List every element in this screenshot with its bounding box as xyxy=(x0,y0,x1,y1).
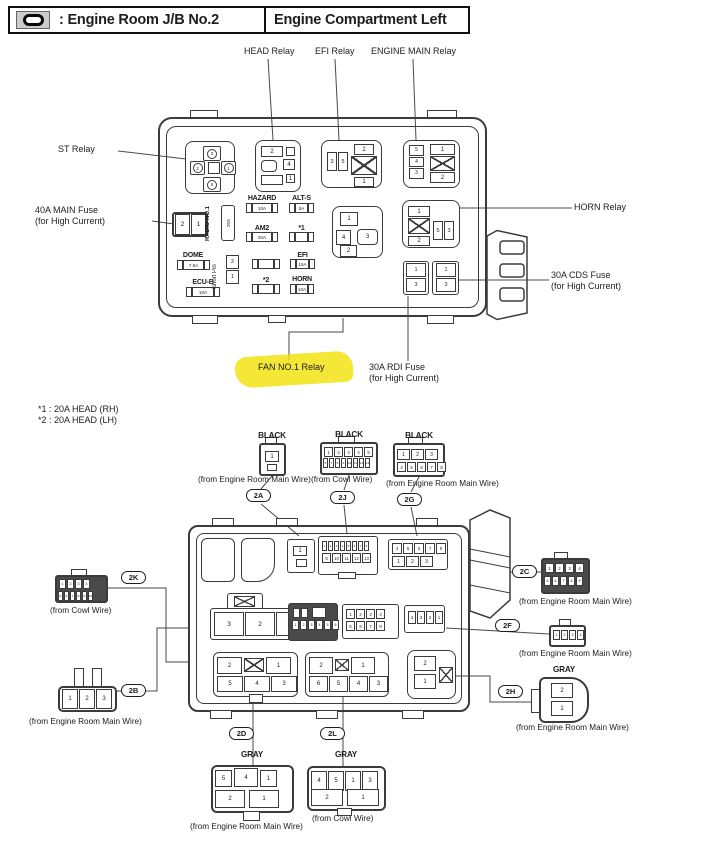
head-relay-pin xyxy=(261,175,283,185)
from-label-2h: (from Engine Room Main Wire) xyxy=(516,723,629,733)
pin-cell: 5 xyxy=(328,771,344,791)
pin-cell: 1 xyxy=(436,263,456,277)
head-relay-pin: 1 xyxy=(286,174,295,183)
head-relay-pin xyxy=(261,160,277,172)
header-legend-text: : Engine Room J/B No.2 xyxy=(59,12,219,28)
connector-latch-prong xyxy=(74,668,84,687)
socket-2c-pins-row2: 5678 xyxy=(346,621,385,631)
connector-id-oval-2l: 2L xyxy=(320,727,345,740)
fuse-am2: 30A xyxy=(246,232,278,242)
connector-color-label: BLACK xyxy=(244,431,300,440)
pin-cell: 1 xyxy=(226,270,239,284)
socket-2d-pins-row2: 543 xyxy=(217,676,297,692)
pin-cell: 11 xyxy=(342,553,351,563)
pin-cell: 7 xyxy=(560,576,567,586)
pin-cell: 2 xyxy=(175,214,190,235)
connector-2d-pin: 5 xyxy=(215,770,232,787)
pin-cell: 1 xyxy=(345,771,361,791)
jb-symbol-icon xyxy=(16,11,50,29)
connector-2k-pins-row1: 1234 xyxy=(59,579,90,589)
connector-2d-latch xyxy=(243,811,260,821)
connector-color-label: GRAY xyxy=(328,750,364,759)
pin-cell: 3 xyxy=(565,563,574,573)
pin-cell: 5 xyxy=(346,621,355,631)
pin-cell: 1 xyxy=(324,447,333,457)
pin-cell: 2 xyxy=(334,447,343,457)
callout-main-fuse: 40A MAIN Fuse (for High Current) xyxy=(35,205,105,226)
socket-2l-pin: 1 xyxy=(351,657,375,674)
from-label-2l: (from Cowl Wire) xyxy=(312,814,373,824)
pin-cell: 3 xyxy=(417,611,425,624)
pin-cell: 1 xyxy=(191,214,206,235)
st-relay-lobe-right: 1 xyxy=(221,161,236,175)
pin-cell: 2 xyxy=(328,541,333,551)
pin-cell: 1 xyxy=(545,563,554,573)
connector-2f-pins: 1234 xyxy=(553,630,584,640)
pin-cell: 11 xyxy=(353,458,358,468)
fuse-label-hazard: HAZARD xyxy=(243,195,281,202)
pin-cell: 6 xyxy=(352,541,357,551)
socket-2j-pins-row2: 910111213 xyxy=(322,553,371,563)
fuse-label-am2: AM2 xyxy=(246,225,278,232)
connector-2d-pin: 1 xyxy=(260,770,277,787)
connector-2g-pins-row1: 123 xyxy=(397,449,438,460)
leader-line xyxy=(117,628,188,691)
horn-relay-pin: 1 xyxy=(408,206,430,217)
fuse-rating: 30A xyxy=(252,232,272,242)
pin-cell: 7 xyxy=(366,621,375,631)
connector-id-oval-2k: 2K xyxy=(121,571,146,584)
box-tab xyxy=(212,518,234,526)
connector-2h-pins: 21 xyxy=(551,683,573,716)
leader-line xyxy=(108,588,188,662)
fuse-label-ecu-b: ECU-B xyxy=(183,279,223,286)
callout-cds-fuse: 30A CDS Fuse (for High Current) xyxy=(551,270,621,291)
st-pin: 5 xyxy=(207,180,217,190)
pin-cell: 3 xyxy=(425,449,438,460)
pin-cell: 7 xyxy=(70,591,75,601)
pin-cell: 2 xyxy=(67,579,74,589)
pin-cell: 7 xyxy=(425,543,435,554)
pin-cell: 3 xyxy=(362,771,378,791)
pin-cell: 2 xyxy=(426,611,434,624)
pin-cell: 13 xyxy=(362,553,371,563)
oval-icon xyxy=(23,14,44,26)
pin-cell: 8 xyxy=(437,462,446,472)
pin-cell: 2 xyxy=(356,609,365,619)
callout-head-relay: HEAD Relay xyxy=(244,46,295,57)
from-label-2f: (from Engine Room Main Wire) xyxy=(519,649,632,659)
socket-2a-slot xyxy=(296,559,307,567)
header-legend-cell: : Engine Room J/B No.2 xyxy=(10,8,266,32)
footnotes: *1 : 20A HEAD (RH) *2 : 20A HEAD (LH) xyxy=(38,404,119,425)
horn-relay-pin: 2 xyxy=(408,236,430,246)
from-label-2c: (from Engine Room Main Wire) xyxy=(519,597,632,607)
connector-id-oval-2f: 2F xyxy=(495,619,520,632)
pin-cell: 4 xyxy=(340,541,345,551)
efi-relay-pin: 1 xyxy=(354,177,374,187)
pin-cell: 5 xyxy=(329,676,348,692)
box-tab xyxy=(276,518,298,526)
socket-2h-pins: 21 xyxy=(414,656,436,689)
connector-id-oval-2c: 2C xyxy=(512,565,537,578)
pin-cell: 1 xyxy=(397,449,410,460)
connector-color-label: BLACK xyxy=(321,430,377,439)
pin-cell: 6 xyxy=(309,676,328,692)
footnote-2: *2 : 20A HEAD (LH) xyxy=(38,415,119,426)
socket-2d-pin: 2 xyxy=(217,657,242,674)
pin-cell: 3 xyxy=(366,609,375,619)
from-label-2d: (from Engine Room Main Wire) xyxy=(190,822,303,832)
connector-color-label: GRAY xyxy=(546,665,582,674)
st-relay-lobe-top: 3 xyxy=(203,146,221,161)
blank-cavity xyxy=(241,538,275,582)
fuse-rating xyxy=(295,232,308,242)
fan-relay-pin: 4 xyxy=(336,230,351,245)
fan-relay-pin: 1 xyxy=(340,212,358,226)
pin-cell: 1 xyxy=(346,609,355,619)
connector-2d-pin: 1 xyxy=(249,790,279,808)
pin-cell: 5 xyxy=(346,541,351,551)
fuse-rating: 5A xyxy=(295,203,308,213)
callout-cds-line2: (for High Current) xyxy=(551,281,621,292)
pin-cell: 7 xyxy=(427,462,436,472)
callout-cds-line1: 30A CDS Fuse xyxy=(551,270,621,281)
pin-cell: 3 xyxy=(327,152,337,171)
pin-cell: 3 xyxy=(308,620,315,630)
cds-fuse-cells: 13 xyxy=(436,263,456,292)
connector-id-oval-2j: 2J xyxy=(330,491,355,504)
engine-main-pin-column: 543 xyxy=(409,145,424,179)
pin-cell: 5 xyxy=(407,462,416,472)
pin-cell: 6 xyxy=(332,620,339,630)
connector-2l-pins-row1: 4513 xyxy=(311,771,378,791)
pin-cell: 2 xyxy=(300,620,307,630)
pin-cell: 10 xyxy=(88,591,93,601)
head-relay-pin: 2 xyxy=(261,146,283,157)
horn-relay-coil-x xyxy=(408,218,430,234)
connector-id-oval-2g: 2G xyxy=(397,493,422,506)
pin-cell: 7 xyxy=(358,541,363,551)
pin-cell: 13 xyxy=(365,458,370,468)
pin-cell: 4 xyxy=(409,157,424,168)
from-label-2k: (from Cowl Wire) xyxy=(50,606,111,616)
connector-2b-pins: 123 xyxy=(62,689,112,709)
fuse-rating: 10A xyxy=(192,287,214,297)
st-relay-lobe-bottom: 5 xyxy=(203,177,221,192)
fuse-label-dome: DOME xyxy=(174,252,212,259)
pin-cell: 3 xyxy=(444,221,454,240)
pin-cell: 2 xyxy=(411,449,424,460)
connector-id-oval-2b: 2B xyxy=(121,684,146,697)
pin-cell: 4 xyxy=(354,447,363,457)
fan-relay-pin: 3 xyxy=(357,229,378,245)
pin-cell: 5 xyxy=(433,221,443,240)
pin-cell: 8 xyxy=(436,543,446,554)
box-tab xyxy=(416,518,438,526)
connector-2j-pins-row2: 678910111213 xyxy=(323,458,370,468)
connector-2d-pin: 4 xyxy=(234,768,258,787)
box-tab xyxy=(210,710,232,719)
pin-cell: 6 xyxy=(414,543,424,554)
wing-slot xyxy=(500,288,524,301)
box-tab xyxy=(427,110,457,118)
fuse-label-horn: HORN xyxy=(287,276,317,283)
socket-2l-pins-row2: 6543 xyxy=(309,676,388,692)
head-relay-pin xyxy=(286,147,295,156)
pin-cell: 3 xyxy=(334,541,339,551)
head-relay-pin: 4 xyxy=(283,159,295,170)
callout-main-fuse-line1: 40A MAIN Fuse xyxy=(35,205,105,216)
fuse-rating: 7.5A xyxy=(183,260,204,270)
pin-cell: 2 xyxy=(555,563,564,573)
pin-cell: 2 xyxy=(406,556,419,567)
pin-cell: 4 xyxy=(244,676,270,692)
connector-id-oval-2a: 2A xyxy=(246,489,271,502)
fuse-star2 xyxy=(252,284,280,294)
connector-2l-pin: 1 xyxy=(347,789,379,806)
pin-cell: 3 xyxy=(96,689,112,709)
pin-cell: 1 xyxy=(392,556,405,567)
socket-2k-pins-row1 xyxy=(293,608,308,618)
connector-2l-pin: 2 xyxy=(311,789,343,806)
pin-cell: 5 xyxy=(58,591,63,601)
radio-no1-fuse: 20A xyxy=(221,205,235,241)
pin-cell: 4 xyxy=(397,462,406,472)
st-relay-center xyxy=(208,162,220,174)
box-tab xyxy=(268,315,286,323)
pin-cell: 3 xyxy=(409,168,424,179)
short-pin-cells: 21 xyxy=(226,255,239,284)
callout-horn-relay: HORN Relay xyxy=(574,202,626,213)
from-label-2j: (from Cowl Wire) xyxy=(311,475,372,485)
pin-cell: 3 xyxy=(436,278,456,292)
pin-cell: 8 xyxy=(364,541,369,551)
footnote-1: *1 : 20A HEAD (RH) xyxy=(38,404,119,415)
fuse-horn: 10A xyxy=(290,284,314,294)
st-relay-lobe-left: 2 xyxy=(190,161,205,175)
pin-cell: 2 xyxy=(79,689,95,709)
fuse-alt-s: 5A xyxy=(289,203,314,213)
wing-slot xyxy=(500,241,524,254)
pin-cell: 6 xyxy=(417,462,426,472)
fuse-dome: 7.5A xyxy=(177,260,210,270)
socket-2h-x xyxy=(439,667,453,683)
from-label-2g: (from Engine Room Main Wire) xyxy=(386,479,499,489)
pin-cell: 6 xyxy=(64,591,69,601)
connector-color-label: BLACK xyxy=(391,431,447,440)
pin-cell: 9 xyxy=(576,576,583,586)
box-tab xyxy=(402,710,424,719)
connector-2c-pins-row2: 56789 xyxy=(544,576,583,586)
fan-relay-pin: 2 xyxy=(340,245,357,257)
pin-cell: 3 xyxy=(75,579,82,589)
header-location-cell: Engine Compartment Left xyxy=(266,8,468,32)
pin-cell: 9 xyxy=(82,591,87,601)
connector-2d-pin: 2 xyxy=(215,790,245,808)
st-pin: 3 xyxy=(207,149,217,159)
engine-main-pin: 2 xyxy=(430,172,455,183)
pin-cell: 4 xyxy=(376,609,385,619)
fuse-rating xyxy=(258,284,274,294)
fuse-label-efi: EFI xyxy=(290,252,315,259)
pin-cell: 4 xyxy=(408,611,416,624)
st-pin: 1 xyxy=(224,163,234,173)
fuse-rating: 15A xyxy=(296,259,309,269)
fuse-rating: 10A xyxy=(252,203,272,213)
pin-cell: 3 xyxy=(420,556,433,567)
socket-2c-pins-row1: 1234 xyxy=(346,609,385,619)
pin-cell: 5 xyxy=(338,152,348,171)
socket-2g-pins-row1: 45678 xyxy=(392,543,446,554)
fuse-efi: 15A xyxy=(290,259,315,269)
pin-cell: 4 xyxy=(575,563,584,573)
pin-cell: 4 xyxy=(349,676,368,692)
callout-st-relay: ST Relay xyxy=(58,144,95,155)
radio-no1-label: RADIO NO.1 xyxy=(205,201,211,241)
pin-cell: 3 xyxy=(569,630,576,640)
fuse-label-alt-s: ALT-S xyxy=(286,195,317,202)
wiring-diagram-page: : Engine Room J/B No.2 Engine Compartmen… xyxy=(0,0,717,853)
pin-cell: 8 xyxy=(335,458,340,468)
pin-cell: 2 xyxy=(245,612,275,636)
box-tab xyxy=(427,315,454,324)
pin-cell: 5 xyxy=(364,447,373,457)
engine-main-coil-x xyxy=(430,156,455,171)
connector-2g-pins-row2: 45678 xyxy=(397,462,446,472)
pin-cell: 2 xyxy=(226,255,239,269)
wing-slot xyxy=(500,264,524,277)
connector-2j-pins-row1: 12345 xyxy=(324,447,373,457)
box-tab xyxy=(190,110,218,118)
socket-2l-pin: 2 xyxy=(309,657,333,674)
pin-cell: 12 xyxy=(352,553,361,563)
socket-2a-pin: 1 xyxy=(293,546,307,556)
socket-2d-x xyxy=(244,658,264,672)
main-fuse-cells: 21 xyxy=(175,214,206,235)
connector-2a-pin: 1 xyxy=(265,451,279,462)
header-bar: : Engine Room J/B No.2 Engine Compartmen… xyxy=(8,6,470,34)
fuse-blank xyxy=(252,259,280,269)
connector-2k-pins-row2: 5678910 xyxy=(58,591,93,601)
header-location-text: Engine Compartment Left xyxy=(274,12,447,28)
st-pin: 2 xyxy=(193,163,203,173)
pin-cell: 4 xyxy=(577,630,584,640)
fuse-star1 xyxy=(289,232,314,242)
pin-cell: 5 xyxy=(403,543,413,554)
pin-cell: 3 xyxy=(214,612,244,636)
connector-2c-pins-row1: 1234 xyxy=(545,563,584,573)
pin-cell: 1 xyxy=(551,701,573,716)
socket-2a xyxy=(287,539,315,573)
pin-cell: 4 xyxy=(311,771,327,791)
pin-cell: 5 xyxy=(324,620,331,630)
pin-cell: 3 xyxy=(344,447,353,457)
connector-id-oval-2h: 2H xyxy=(498,685,523,698)
box-tab xyxy=(316,710,338,719)
pin-cell: 8 xyxy=(76,591,81,601)
callout-rdi-fuse: 30A RDI Fuse (for High Current) xyxy=(369,362,439,383)
socket-2f-pins: 4321 xyxy=(408,611,443,624)
pin-cell: 8 xyxy=(376,621,385,631)
socket-2b-x xyxy=(234,596,255,607)
pin-cell: 1 xyxy=(406,263,426,277)
efi-relay-pin-pair: 35 xyxy=(327,152,348,171)
pin-cell: 1 xyxy=(322,541,327,551)
box-tab xyxy=(192,315,218,324)
pin-cell: 2 xyxy=(414,656,436,671)
pin-cell: 1 xyxy=(553,630,560,640)
pin-cell: 6 xyxy=(323,458,328,468)
connector-latch-prong xyxy=(92,668,102,687)
pin-cell: 1 xyxy=(292,620,299,630)
from-label-2b: (from Engine Room Main Wire) xyxy=(29,717,142,727)
pin-cell: 4 xyxy=(83,579,90,589)
pin-cell: 10 xyxy=(332,553,341,563)
pin-cell: 6 xyxy=(356,621,365,631)
pin-cell: 5 xyxy=(217,676,243,692)
callout-efi-relay: EFI Relay xyxy=(315,46,355,57)
callout-main-fuse-line2: (for High Current) xyxy=(35,216,105,227)
connector-color-label: GRAY xyxy=(234,750,270,759)
rdi-fuse-cells: 13 xyxy=(406,263,426,292)
from-label-2a: (from Engine Room Main Wire) xyxy=(198,475,311,485)
pin-cell: 9 xyxy=(322,553,331,563)
pin-cell: 4 xyxy=(392,543,402,554)
socket-2k-pins-row2: 123456 xyxy=(292,620,339,630)
socket-2d-pin: 1 xyxy=(266,657,291,674)
pin-cell: 1 xyxy=(414,674,436,689)
fuse-rating: 10A xyxy=(296,284,308,294)
callout-fan-relay: FAN NO.1 Relay xyxy=(258,362,325,373)
pin-cell: 9 xyxy=(341,458,346,468)
engine-main-pin: 1 xyxy=(430,144,455,155)
pin-cell: 8 xyxy=(568,576,575,586)
pin-cell: 4 xyxy=(316,620,323,630)
pin-cell: 6 xyxy=(552,576,559,586)
horn-relay-pin-pair: 53 xyxy=(433,221,454,235)
connector-2a-slot xyxy=(267,464,277,471)
pin-cell: 2 xyxy=(551,683,573,698)
socket-2k-latch xyxy=(312,607,326,618)
pin-cell xyxy=(301,608,308,618)
blank-cavity xyxy=(201,538,235,582)
fuse-hazard: 10A xyxy=(246,203,278,213)
pin-cell: 5 xyxy=(544,576,551,586)
pin-cell: 1 xyxy=(62,689,78,709)
callout-engine-main-relay: ENGINE MAIN Relay xyxy=(371,46,456,57)
pin-cell: 12 xyxy=(359,458,364,468)
socket-2j-latch xyxy=(338,572,356,579)
pin-cell: 2 xyxy=(561,630,568,640)
socket-2d-latch xyxy=(249,694,263,703)
pin-cell: 3 xyxy=(369,676,388,692)
radio-no1-rating: 20A xyxy=(226,219,231,227)
efi-relay-pin: 2 xyxy=(354,144,374,155)
pin-cell: 5 xyxy=(409,145,424,156)
socket-2l-x xyxy=(335,659,349,671)
pin-cell: 1 xyxy=(435,611,443,624)
pin-cell: 3 xyxy=(271,676,297,692)
socket-2g-pins-row2: 123 xyxy=(392,556,433,567)
efi-relay-coil-x xyxy=(351,156,377,175)
socket-2j-pins-row1: 12345678 xyxy=(322,541,369,551)
pin-cell: 10 xyxy=(347,458,352,468)
pin-cell: 7 xyxy=(329,458,334,468)
pin-cell: 1 xyxy=(59,579,66,589)
fuse-label-star1: *1 xyxy=(289,225,314,232)
pin-cell xyxy=(293,608,300,618)
